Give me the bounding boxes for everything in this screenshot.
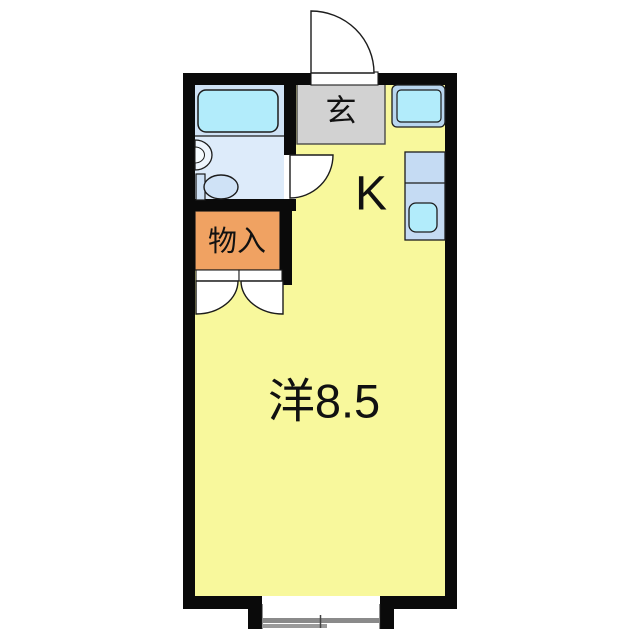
closet-threshold-right bbox=[239, 270, 282, 281]
toilet-bowl-icon bbox=[204, 175, 238, 199]
wall-right bbox=[445, 73, 457, 609]
entrance-label: 玄 bbox=[326, 94, 357, 129]
wall-bathroom-right bbox=[284, 73, 296, 155]
window-bay-pier-right bbox=[380, 596, 394, 629]
wall-bathroom-bottom bbox=[183, 199, 296, 211]
wall-bottom-right bbox=[394, 596, 457, 609]
washer-space-inner-icon bbox=[397, 90, 441, 122]
entry-door-threshold bbox=[311, 72, 378, 85]
wall-bottom-left bbox=[183, 596, 248, 609]
kitchen-sink-icon bbox=[409, 203, 437, 232]
wall-left bbox=[183, 73, 195, 609]
kitchen-label: K bbox=[355, 168, 387, 221]
bathtub-icon bbox=[198, 90, 278, 132]
western-room-label: 洋8.5 bbox=[268, 375, 380, 428]
storage-label: 物入 bbox=[208, 225, 266, 258]
closet-threshold-left bbox=[196, 270, 239, 281]
floor-plan-svg: 玄 K 物入 洋8.5 bbox=[0, 0, 640, 640]
window-bay-pier-left bbox=[248, 596, 262, 629]
floor-plan-canvas: 玄 K 物入 洋8.5 bbox=[0, 0, 640, 640]
sliding-window-pane-bottom bbox=[262, 624, 327, 628]
